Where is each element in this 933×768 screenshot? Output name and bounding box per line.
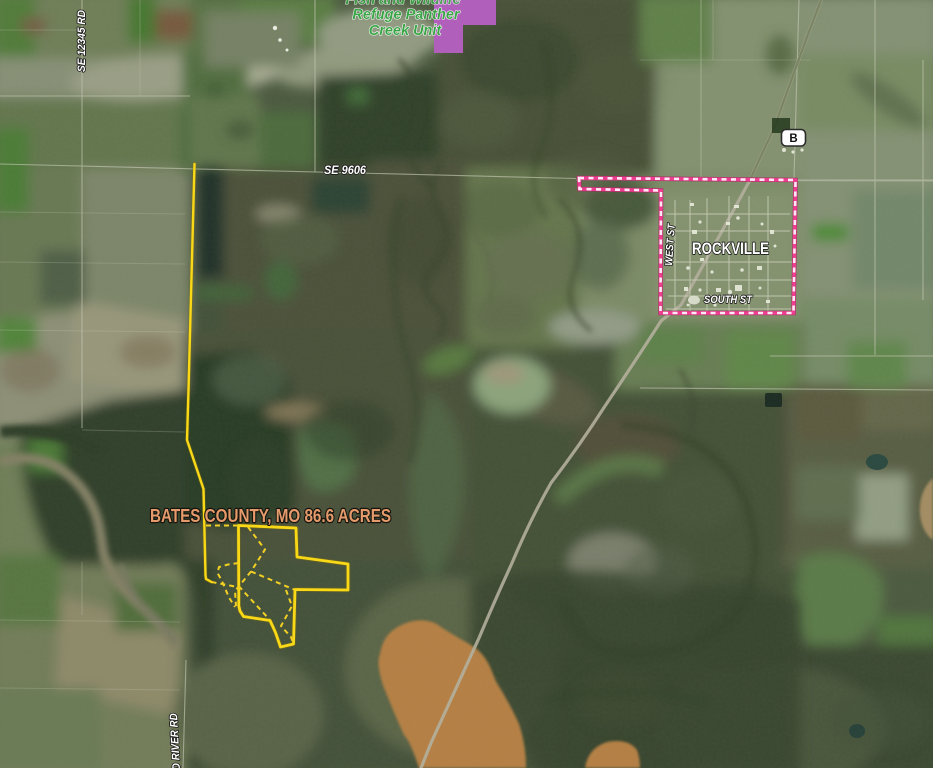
svg-text:ROCKVILLE: ROCKVILLE — [692, 240, 769, 258]
svg-text:B: B — [789, 133, 797, 145]
svg-text:SE 9606: SE 9606 — [324, 163, 366, 177]
svg-text:Refuge Panther: Refuge Panther — [352, 7, 461, 23]
svg-text:BATES COUNTY, MO 86.6 ACRES: BATES COUNTY, MO 86.6 ACRES — [150, 506, 391, 526]
svg-text:SE 12345 RD: SE 12345 RD — [76, 10, 88, 72]
svg-text:SOUTH ST: SOUTH ST — [704, 294, 753, 306]
svg-text:Creek Unit: Creek Unit — [369, 23, 443, 39]
